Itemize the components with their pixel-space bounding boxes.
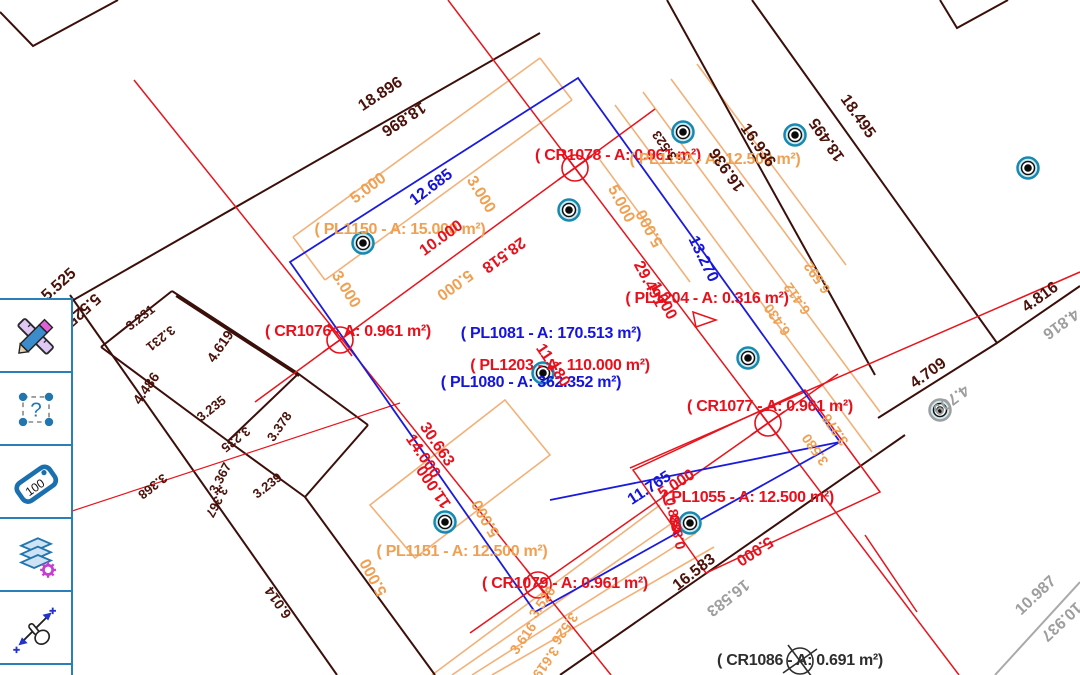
dimension-label: 6.014	[261, 584, 294, 622]
pencil-ruler-icon	[10, 310, 62, 362]
parcel-area-label: ( CR1076 - A: 0.961 m²)	[265, 323, 431, 340]
parcel-area-label: ( CR1086 - A: 0.691 m²)	[717, 652, 883, 669]
price-tag-100-icon: 100	[10, 456, 62, 508]
dimension-label: 18.495	[837, 91, 879, 141]
dimension-label: 16.583	[703, 576, 752, 620]
hand-pointer-icon	[25, 618, 52, 646]
dimension-label: 5.000	[433, 266, 475, 303]
survey-point-marker	[559, 200, 580, 221]
draw-edit-tools-button[interactable]	[0, 298, 71, 371]
dimension-label: 3.235	[218, 424, 253, 456]
dimension-label: 3.000	[463, 173, 499, 216]
survey-point-marker	[1018, 158, 1039, 179]
dimension-label: 6.592	[800, 259, 833, 297]
parcel-area-label: ( CR1079 - A: 0.961 m²)	[482, 575, 648, 592]
dimension-label: 18.896	[355, 74, 405, 115]
survey-point-marker	[435, 512, 456, 533]
dimension-label: 3.239	[250, 470, 285, 502]
survey-point-marker	[785, 125, 806, 146]
survey-point-marker	[673, 122, 694, 143]
parcel-area-label: ( CR1077 - A: 0.961 m²)	[687, 398, 853, 415]
question-glyph: ?	[30, 399, 41, 421]
dimension-label: 3.616	[506, 619, 539, 657]
measure-select-button[interactable]	[0, 590, 71, 663]
selection-question-icon: ?	[10, 383, 62, 435]
dimension-label: 28.518	[479, 233, 529, 276]
price-label-button[interactable]: 100	[0, 444, 71, 517]
dimension-label: 18.495	[806, 115, 848, 165]
dimension-label: 3.368	[135, 471, 170, 503]
survey-point-marker	[738, 348, 759, 369]
measure-pointer-icon	[10, 602, 62, 654]
layers-settings-button[interactable]	[0, 517, 71, 590]
parcel-area-label: ( PL1081 - A: 170.513 m²)	[461, 325, 641, 342]
dimension-label: 18.896	[378, 98, 428, 139]
parcel-area-label: ( PL1080 - A: 362.352 m²)	[441, 374, 621, 391]
dimension-label: 5.000	[469, 497, 504, 540]
dimension-label: 3.231	[143, 323, 178, 355]
dimension-label: 5.000	[633, 206, 667, 249]
dimension-label: 3.000	[328, 268, 364, 311]
map-canvas[interactable]: ( CR1078 - A: 0.961 m²)( PL1152 - A: 12.…	[0, 0, 1080, 675]
toolbar-empty-cell	[0, 663, 71, 675]
toolbar-sidebar: ? 100	[0, 298, 73, 675]
parcel-area-label: ( PL1151 - A: 12.500 m²)	[377, 543, 548, 560]
dimension-label: 4.816	[1019, 279, 1061, 316]
dimension-label: 3.235	[194, 393, 229, 425]
dimension-label: 3.526	[548, 610, 581, 648]
dimension-label: 5.000	[357, 555, 391, 598]
gear-icon	[40, 561, 56, 577]
map-viewport[interactable]: ( CR1078 - A: 0.961 m²)( PL1152 - A: 12.…	[0, 0, 1080, 675]
parcel-area-label: ( PL1055 - A: 12.500 m²)	[662, 489, 834, 506]
dimension-label: 3.619	[529, 644, 562, 675]
dimension-label: 5.000	[733, 533, 776, 569]
identify-area-button[interactable]: ?	[0, 371, 71, 444]
layers-gear-icon	[10, 529, 62, 581]
